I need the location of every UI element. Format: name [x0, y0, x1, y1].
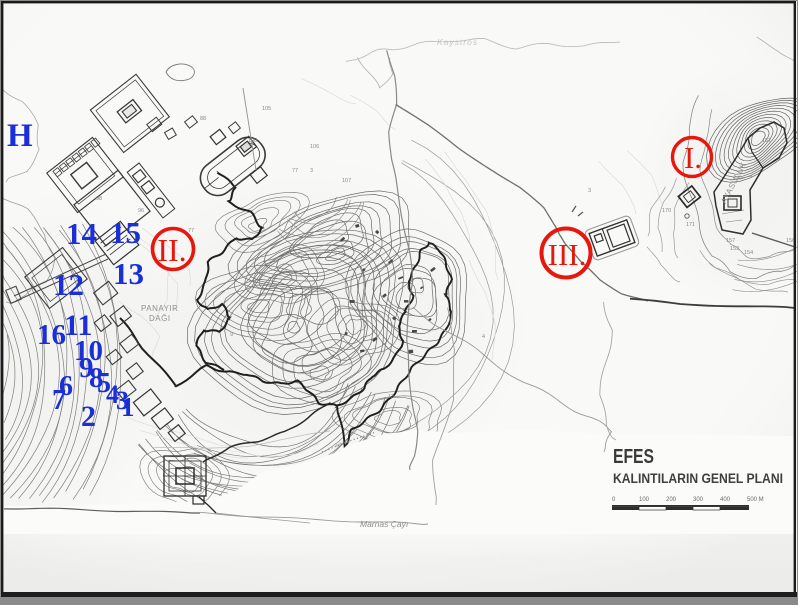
svg-text:H: H — [7, 118, 33, 154]
svg-text:77: 77 — [188, 228, 194, 234]
svg-text:157: 157 — [726, 238, 735, 244]
svg-text:200: 200 — [666, 497, 677, 503]
svg-text:107: 107 — [342, 178, 351, 184]
svg-text:PANAYIR: PANAYIR — [141, 304, 178, 313]
svg-text:3: 3 — [310, 168, 313, 174]
svg-text:171: 171 — [686, 222, 695, 228]
svg-text:96: 96 — [138, 208, 144, 214]
svg-text:300: 300 — [693, 497, 704, 503]
svg-text:III.: III. — [548, 237, 587, 272]
svg-text:I.: I. — [684, 140, 702, 175]
svg-text:14: 14 — [66, 216, 97, 251]
svg-text:KALINTILARIN GENEL PLANI: KALINTILARIN GENEL PLANI — [613, 471, 783, 486]
svg-text:II.: II. — [157, 232, 186, 268]
svg-text:105: 105 — [262, 106, 271, 112]
svg-text:2: 2 — [81, 400, 96, 433]
svg-text:6: 6 — [376, 254, 379, 260]
svg-text:77: 77 — [292, 168, 298, 174]
svg-text:3: 3 — [588, 188, 591, 194]
svg-text:98: 98 — [96, 196, 102, 202]
svg-text:12: 12 — [53, 267, 84, 302]
svg-text:4: 4 — [482, 334, 485, 340]
svg-text:106: 106 — [310, 144, 319, 150]
svg-text:154: 154 — [744, 250, 753, 256]
svg-text:170: 170 — [662, 208, 671, 214]
svg-text:1: 1 — [121, 392, 135, 422]
svg-text:Plan der Ruinen: Plan der Ruinen — [238, 555, 318, 565]
svg-text:13: 13 — [388, 394, 394, 400]
svg-text:9: 9 — [230, 332, 233, 338]
svg-text:13: 13 — [113, 256, 144, 291]
svg-text:100: 100 — [248, 138, 257, 144]
svg-text:15: 15 — [110, 215, 141, 250]
svg-text:nach den Grabungen: nach den Grabungen — [452, 554, 555, 564]
svg-text:100: 100 — [639, 497, 650, 503]
svg-text:77: 77 — [246, 308, 252, 314]
svg-text:500 M: 500 M — [747, 497, 764, 503]
svg-text:EFES: EFES — [613, 446, 654, 468]
svg-text:16: 16 — [37, 319, 66, 351]
svg-text:88: 88 — [200, 116, 206, 122]
svg-text:DAĞI: DAĞI — [149, 314, 171, 323]
svg-text:153: 153 — [730, 246, 739, 252]
svg-text:400: 400 — [720, 497, 731, 503]
svg-text:7: 7 — [52, 385, 66, 416]
svg-text:Marnas Çayı: Marnas Çayı — [360, 519, 408, 529]
svg-text:Kaystros: Kaystros — [437, 37, 478, 47]
svg-text:157: 157 — [762, 138, 771, 144]
